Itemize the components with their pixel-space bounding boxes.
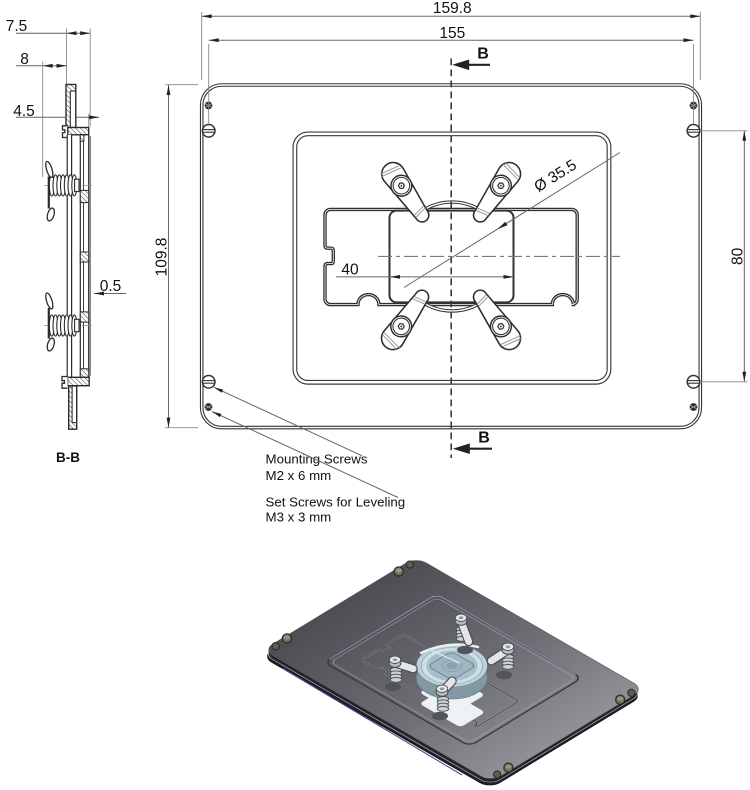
svg-text:B: B — [478, 430, 490, 447]
svg-text:Ø 35.5: Ø 35.5 — [531, 157, 579, 196]
svg-text:M3 x 3 mm: M3 x 3 mm — [266, 510, 332, 525]
svg-text:B: B — [477, 46, 489, 63]
svg-text:155: 155 — [439, 25, 465, 42]
svg-text:B-B: B-B — [56, 450, 80, 465]
svg-text:159.8: 159.8 — [433, 0, 472, 17]
svg-text:Set Screws for Leveling: Set Screws for Leveling — [266, 494, 406, 509]
svg-text:40: 40 — [341, 262, 359, 279]
svg-text:7.5: 7.5 — [6, 18, 28, 35]
svg-text:M2 x 6 mm: M2 x 6 mm — [266, 468, 332, 483]
svg-text:Mounting Screws: Mounting Screws — [266, 451, 368, 466]
